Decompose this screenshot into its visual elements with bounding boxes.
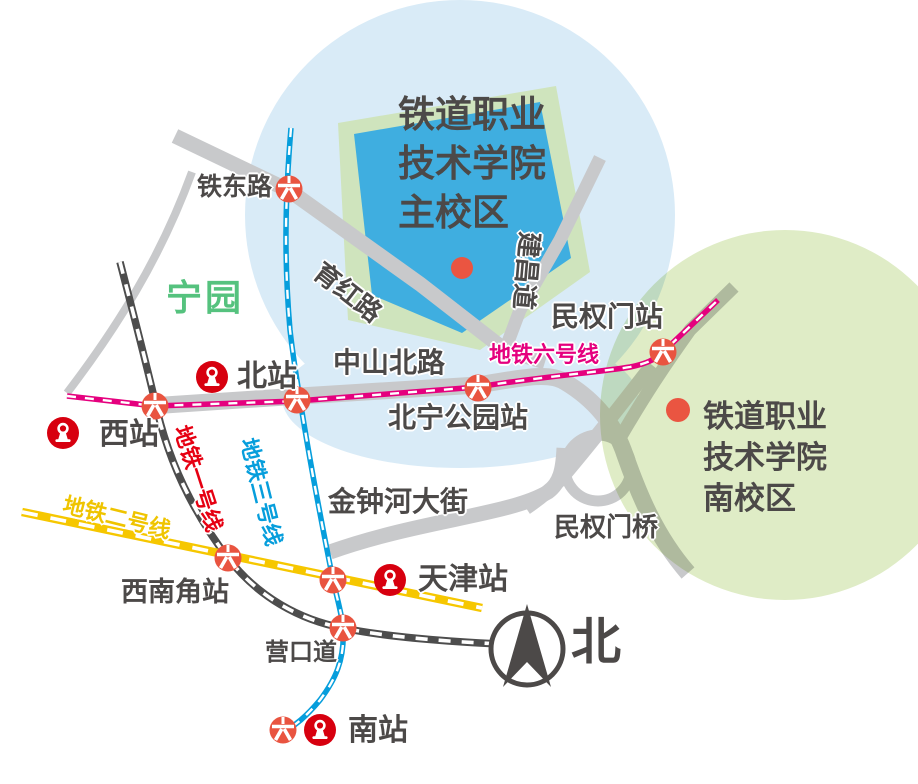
- tiedonglu-station-label: 铁东路: [197, 175, 272, 200]
- railway-logo-south-station: [304, 714, 336, 746]
- north-station-label: 北站: [237, 362, 297, 392]
- railway-logo-tianjin-station: [374, 564, 406, 596]
- main-campus-title-line1: 铁道职业: [398, 90, 546, 139]
- ningyuan-park-label: 宁园: [166, 280, 244, 316]
- compass-north-label: 北: [571, 617, 621, 667]
- south-campus-dot: [666, 398, 690, 422]
- xinanjiao-station-label: 西南角站: [121, 579, 229, 606]
- south-campus-title-line3: 南校区: [703, 478, 827, 519]
- station-icon-south-interchange: [270, 717, 297, 744]
- station-icon-beining-park: [465, 375, 492, 402]
- station-icon-yingkoudao: [330, 615, 357, 642]
- transit-map: 铁道职业 技术学院 主校区 铁道职业 技术学院 南校区 宁园 铁东路 北站 西站…: [0, 0, 918, 784]
- railway-logo-west-station: [47, 417, 79, 449]
- station-icon-xinanjiao: [215, 545, 242, 572]
- south-station-label: 南站: [348, 716, 408, 746]
- main-campus-dot: [451, 257, 473, 279]
- main-campus-title: 铁道职业 技术学院 主校区: [398, 90, 546, 237]
- zhongshanbei-road-label: 中山北路: [333, 349, 445, 377]
- yingkoudao-station-label: 营口道: [265, 641, 337, 665]
- jinzhonghe-road-label: 金钟河大街: [328, 488, 468, 516]
- south-campus-title-line1: 铁道职业: [703, 396, 827, 437]
- beining-park-station-label: 北宁公园站: [388, 404, 528, 432]
- west-station-label: 西站: [99, 420, 159, 450]
- metro-line6-label: 地铁六号线: [489, 344, 599, 366]
- main-campus-title-line2: 技术学院: [398, 139, 546, 188]
- tianjin-station-label: 天津站: [418, 565, 508, 595]
- station-icon-tianjin-interchange: [320, 567, 347, 594]
- station-icon-minquanmen: [650, 339, 677, 366]
- minquanmen-bridge-label: 民权门桥: [554, 514, 658, 540]
- jianchang-road-label: 建昌道: [510, 231, 543, 311]
- main-campus-title-line3: 主校区: [398, 188, 546, 237]
- compass-icon: [491, 604, 563, 687]
- railway-logo-north-station: [196, 361, 228, 393]
- station-icon-tiedonglu: [276, 176, 303, 203]
- south-campus-title-line2: 技术学院: [703, 437, 827, 478]
- minquanmen-station-label: 民权门站: [551, 303, 663, 331]
- station-icon-west-interchange: [142, 393, 169, 420]
- south-campus-title: 铁道职业 技术学院 南校区: [703, 396, 827, 519]
